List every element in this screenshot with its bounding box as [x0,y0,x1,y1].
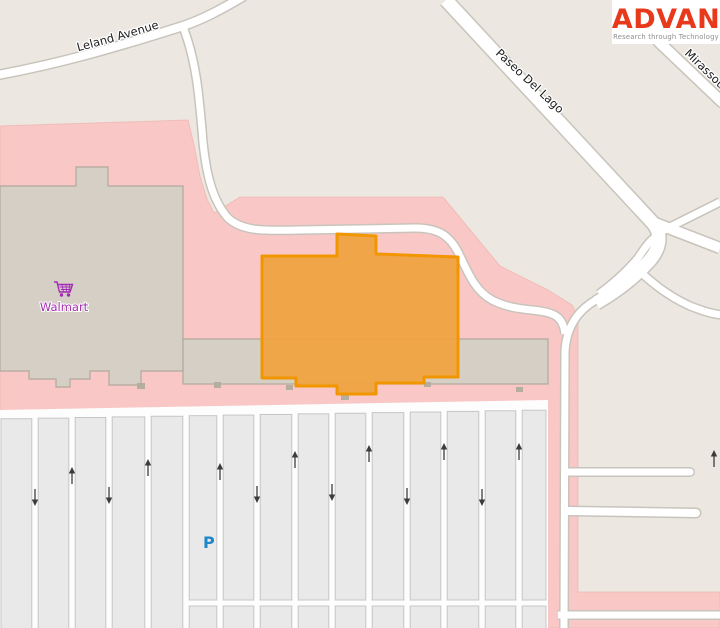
map-screenshot: Leland Avenue Paseo Del Lago Mirassou Wa… [0,0,720,628]
parking-cell [447,411,479,600]
parking-cell [1,419,32,628]
parking-cell [372,413,404,600]
parking-cell [112,417,145,628]
parking-cell [522,410,546,600]
parking-symbol: P [203,533,215,552]
parking-cell [223,606,254,628]
parking-cell [151,416,183,628]
parking-cell [260,414,292,600]
parking-cell [335,606,366,628]
parking-cell [189,416,217,600]
parking-cell [372,606,404,628]
parking-cell [260,606,292,628]
parking-cell [298,606,329,628]
parking-cell [335,413,366,600]
advan-logo: ADVAN Research through Technology [612,0,720,44]
brand-tagline: Research through Technology [613,33,719,41]
brand-name: ADVAN [612,4,720,35]
parking-cell [223,415,254,600]
parking-cell [38,418,69,628]
parking-cell [410,412,441,600]
parking-cell [485,411,516,600]
road-deadend-2[interactable] [569,511,696,513]
parking-cell [189,606,217,628]
parking-cells [1,410,546,628]
walmart-building[interactable] [0,167,183,387]
parking-cell [410,606,441,628]
parking-cell [298,414,329,600]
parking-cell [447,606,479,628]
highlighted-building[interactable] [262,234,458,394]
parking-cell [522,606,546,628]
walmart-label: Walmart [40,300,89,314]
parking-cell [485,606,516,628]
parking-cell [75,418,106,628]
map-canvas[interactable]: Leland Avenue Paseo Del Lago Mirassou Wa… [0,0,720,628]
